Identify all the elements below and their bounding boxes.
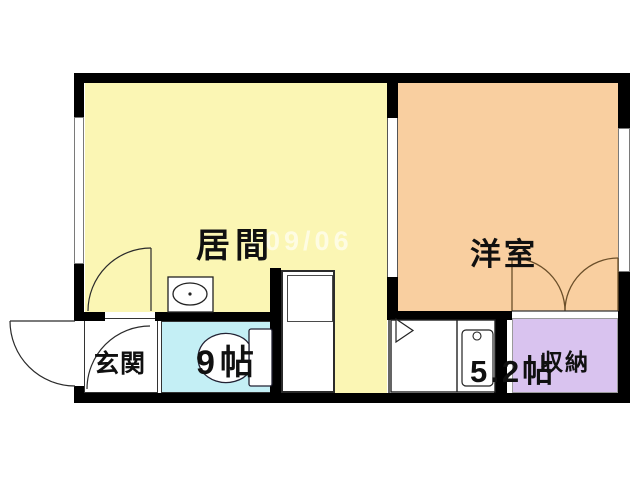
wall-left-upper: [74, 73, 84, 117]
wall-entrance-left: [74, 312, 105, 321]
western-room-label: 洋室 5.2帖: [470, 157, 556, 469]
entrance-label: 玄関: [94, 344, 146, 380]
living-room-size: 9帖: [196, 344, 274, 383]
living-room-name: 居間: [196, 227, 274, 266]
living-room-label: 居間 9帖: [196, 149, 274, 461]
left-window: [74, 117, 84, 264]
western-room-name: 洋室: [470, 235, 556, 274]
wall-left-lower: [74, 386, 84, 403]
wall-right-upper: [618, 73, 630, 128]
wall-top: [74, 73, 630, 83]
wall-center-lower: [387, 277, 398, 312]
floor-plan-canvas: 109/06: [0, 0, 640, 480]
entrance-swing-door-icon: [10, 321, 75, 386]
wall-right-lower: [618, 272, 630, 403]
refrigerator-inner-square: [287, 275, 333, 322]
wall-center-upper: [387, 83, 398, 118]
room-living-kitchen-corridor: [335, 312, 387, 393]
room-divider-opening: [387, 118, 398, 277]
refrigerator-space-icon: [281, 270, 335, 393]
closet-label: 収納: [540, 343, 590, 377]
right-window: [618, 128, 630, 272]
